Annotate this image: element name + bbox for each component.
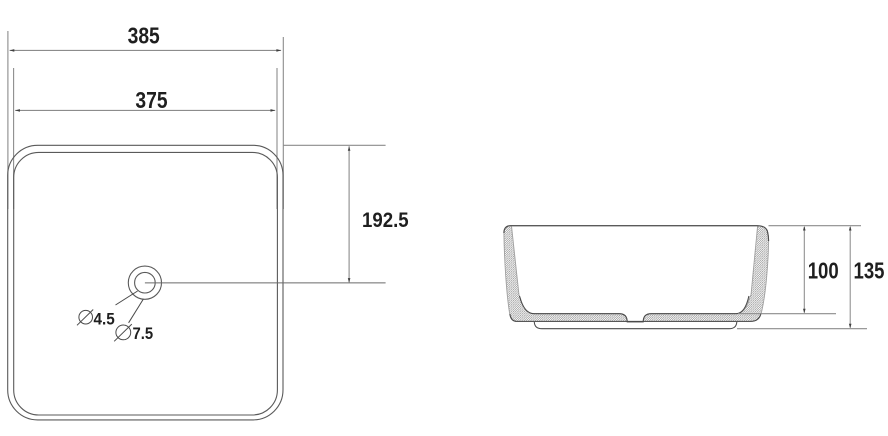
svg-text:385: 385: [128, 22, 160, 48]
svg-text:192.5: 192.5: [362, 208, 409, 232]
svg-text:375: 375: [135, 87, 167, 113]
svg-text:7.5: 7.5: [133, 324, 154, 343]
svg-text:135: 135: [854, 258, 885, 284]
svg-text:100: 100: [808, 258, 839, 284]
svg-text:4.5: 4.5: [94, 310, 115, 329]
